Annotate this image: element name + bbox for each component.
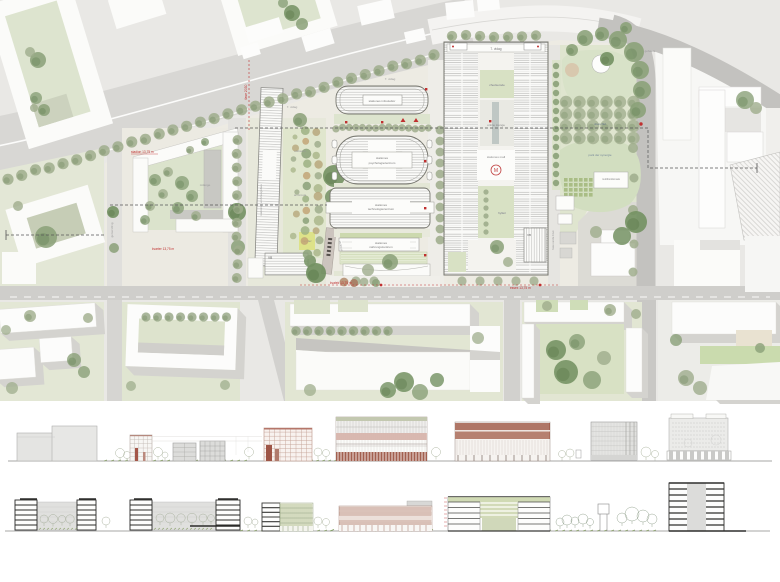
svg-text:stationes mall: stationes mall bbox=[487, 155, 506, 159]
svg-text:7. vidag: 7. vidag bbox=[385, 77, 396, 81]
svg-text:kvarter 13,75 m: kvarter 13,75 m bbox=[152, 247, 174, 251]
svg-text:kvatek 13,75 m: kvatek 13,75 m bbox=[330, 281, 352, 285]
svg-text:gensordring: gensordring bbox=[110, 222, 114, 237]
svg-text:essex 13,75 m: essex 13,75 m bbox=[510, 286, 531, 290]
svg-text:multifunktionale: multifunktionale bbox=[602, 177, 621, 181]
svg-text:gehwere: gehwere bbox=[645, 49, 656, 53]
svg-text:7. vidag: 7. vidag bbox=[490, 47, 501, 51]
svg-text:online lounge: online lounge bbox=[487, 123, 505, 127]
svg-text:stadion 13,75 m: stadion 13,75 m bbox=[131, 150, 154, 154]
svg-text:checkerode: checkerode bbox=[489, 83, 505, 87]
svg-text:psychologiezentrum: psychologiezentrum bbox=[369, 161, 396, 165]
svg-text:technologiezentrum: technologiezentrum bbox=[368, 207, 395, 211]
svg-text:fase 2030: fase 2030 bbox=[244, 84, 248, 99]
svg-text:stationes infostudior: stationes infostudior bbox=[369, 99, 396, 103]
svg-text:obere fläd: obere fläd bbox=[594, 122, 606, 126]
svg-text:park der synergie: park der synergie bbox=[588, 153, 612, 157]
svg-text:fase verde bruk: fase verde bruk bbox=[551, 230, 555, 250]
svg-text:stationes wohnungsbau: stationes wohnungsbau bbox=[259, 184, 263, 216]
svg-text:7. vidag: 7. vidag bbox=[287, 105, 298, 109]
svg-text:M: M bbox=[494, 168, 498, 174]
svg-text:VB: VB bbox=[527, 233, 531, 237]
svg-text:nahrungszentrum: nahrungszentrum bbox=[369, 245, 393, 249]
svg-text:ambrosia: ambrosia bbox=[294, 193, 307, 197]
svg-text:hylleri: hylleri bbox=[498, 211, 506, 215]
svg-text:VB: VB bbox=[268, 256, 272, 260]
svg-text:elsbeere: elsbeere bbox=[294, 149, 306, 153]
svg-text:stationes: stationes bbox=[376, 156, 389, 160]
svg-text:milange: milange bbox=[200, 183, 211, 187]
